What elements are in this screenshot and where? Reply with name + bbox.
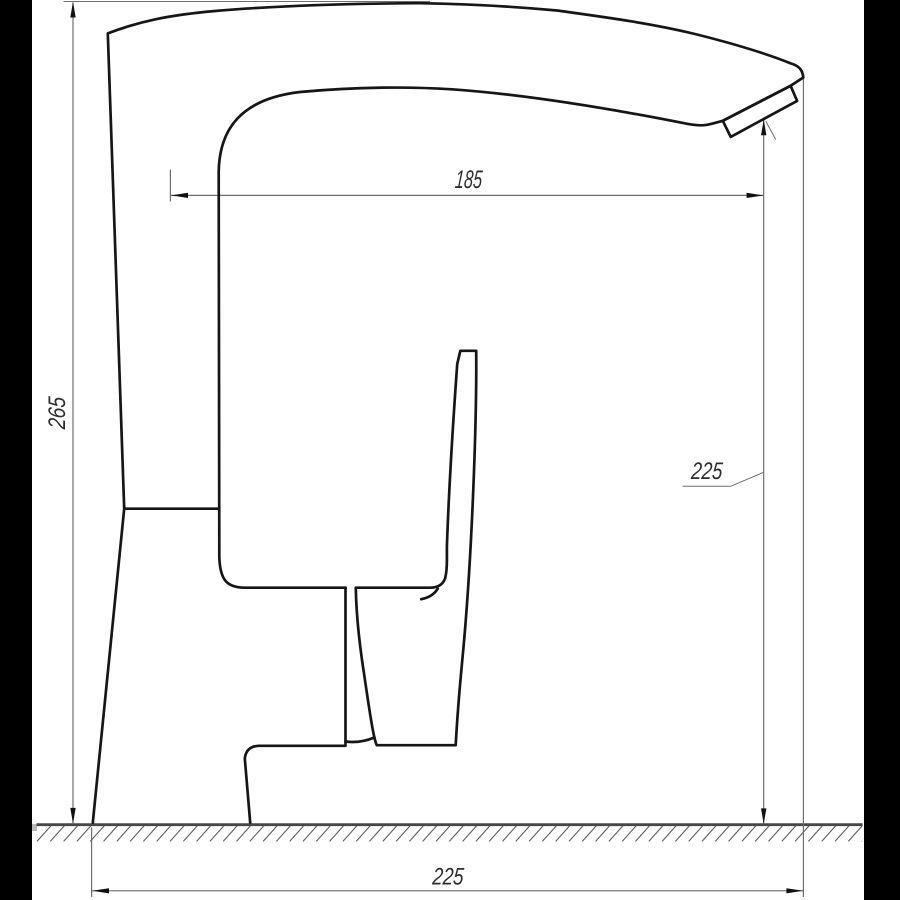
svg-text:225: 225 [431,864,466,891]
svg-text:225: 225 [690,458,725,485]
svg-text:265: 265 [44,395,71,431]
svg-text:185: 185 [454,166,484,194]
